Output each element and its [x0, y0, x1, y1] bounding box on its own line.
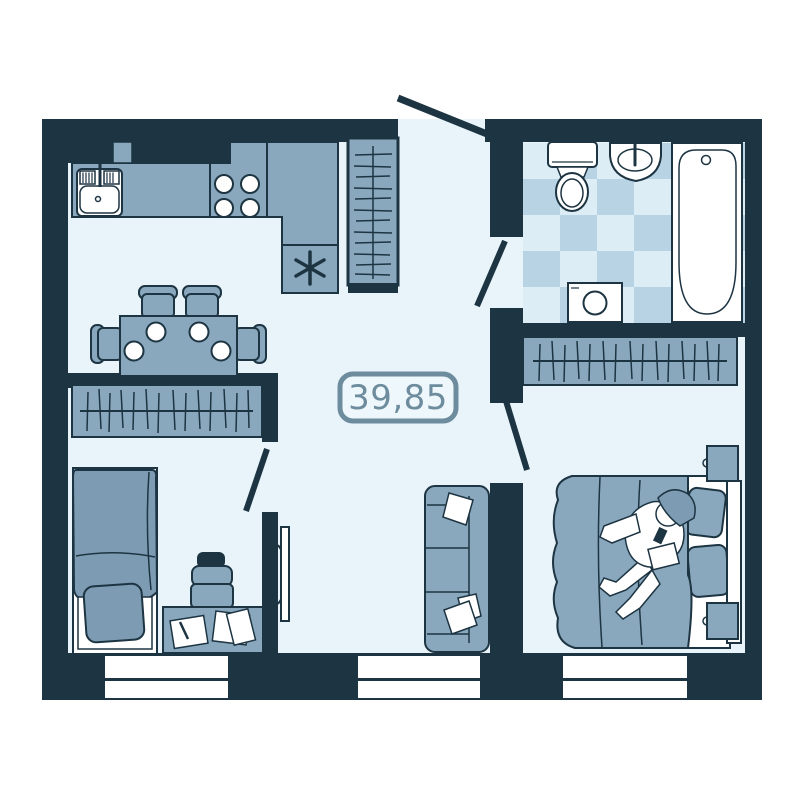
burner [241, 175, 259, 193]
area-label: 39,85 [348, 378, 448, 418]
area-label-badge: 39,85 [340, 374, 456, 421]
window-pane [105, 656, 228, 678]
kitchen-wall-jog-right [132, 142, 230, 163]
sink-basin [80, 186, 119, 213]
plate [212, 342, 231, 361]
window-bedroom [563, 656, 687, 698]
outer-wall-top-right [485, 119, 762, 142]
burner [241, 199, 259, 217]
bedroom-wardrobe [523, 337, 737, 385]
floor-plan-page: 39,85 [0, 0, 800, 800]
bathtub [672, 143, 742, 322]
blanket [73, 470, 157, 601]
plate [190, 323, 209, 342]
outer-wall-left [42, 119, 68, 700]
window-pane [358, 681, 480, 698]
windows [105, 656, 687, 698]
bedroom-west-wall-lower [490, 483, 523, 653]
tv-screen [281, 527, 289, 621]
vent-block [113, 142, 132, 163]
nightstand [707, 446, 738, 481]
window-pane [563, 656, 687, 678]
wardrobe-base [348, 283, 398, 293]
chair-seat [191, 584, 233, 608]
sofa [425, 486, 489, 652]
nightstand [707, 603, 738, 639]
tall-wardrobe [348, 138, 398, 293]
window-kids-room [105, 656, 228, 698]
paper [170, 616, 208, 649]
window-pane [105, 681, 228, 698]
chair-seat [98, 328, 122, 360]
plate [125, 342, 144, 361]
burner [215, 199, 233, 217]
pillow [687, 544, 730, 597]
apartment-floor-plan: 39,85 [0, 0, 800, 800]
window-pane [358, 656, 480, 678]
chair-seat [142, 294, 174, 318]
bathroom-south-wall [490, 323, 745, 337]
pillow [83, 583, 145, 643]
washing-machine [568, 283, 622, 322]
toilet-tank [548, 142, 597, 167]
chair-seat [186, 294, 218, 318]
kids-wardrobe [72, 385, 262, 437]
outer-wall-right [745, 119, 762, 700]
chair-seat [235, 328, 259, 360]
plate [147, 323, 166, 342]
sink-rack-left [80, 171, 95, 184]
kitchen-wall-jog-left [68, 142, 113, 163]
window-pane [563, 681, 687, 698]
kids-room-east-wall-upper [262, 388, 278, 442]
burner [215, 175, 233, 193]
bedroom-west-wall-upper [490, 340, 523, 403]
window-hall [358, 656, 480, 698]
sink-rack-right [104, 171, 119, 184]
outer-wall-top-left [42, 119, 398, 142]
kids-room-east-wall-lower [262, 512, 278, 653]
washer-body [568, 283, 622, 322]
single-bed [73, 468, 157, 654]
